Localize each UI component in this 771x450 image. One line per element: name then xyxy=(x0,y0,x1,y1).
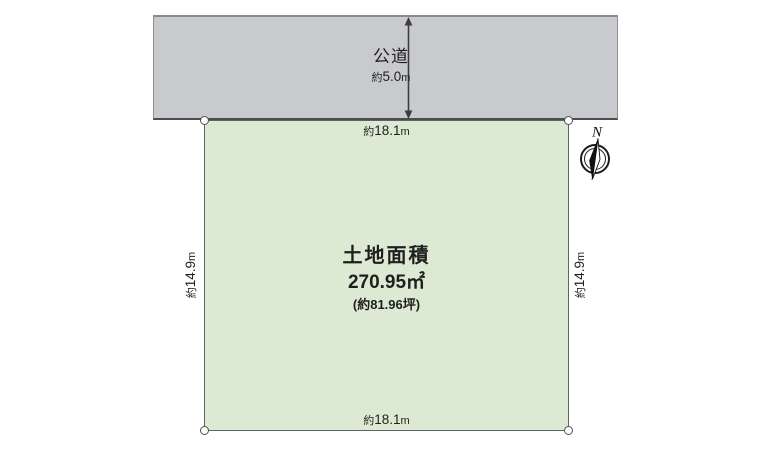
dim-right-unit: m xyxy=(575,252,587,261)
land-area-title: 土地面積 xyxy=(204,243,569,269)
corner-marker-top-right xyxy=(564,116,573,125)
road-width-prefix: 約 xyxy=(372,72,383,84)
road-width-label: 約5.0m xyxy=(341,69,441,86)
dim-right-prefix: 約 xyxy=(575,287,587,298)
land-area-tsubo: (約81.96坪) xyxy=(204,297,569,314)
compass-icon xyxy=(575,135,615,185)
road-label-group: 公道 約5.0m xyxy=(341,46,441,86)
dim-top-value: 18.1 xyxy=(374,123,400,138)
road-name-label: 公道 xyxy=(341,46,441,67)
dim-bottom-prefix: 約 xyxy=(363,415,374,427)
dimension-label-top: 約18.1m xyxy=(204,122,569,140)
dim-left-prefix: 約 xyxy=(186,287,198,298)
dim-bottom-value: 18.1 xyxy=(374,412,400,427)
dim-left-value: 14.9 xyxy=(183,261,198,287)
land-area-square-meters: 270.95㎡ xyxy=(204,271,569,296)
land-plot-diagram: 公道 約5.0m 約18.1m 約18.1m 約14.9m 約14.9m 土地面… xyxy=(0,0,771,450)
north-label: N xyxy=(592,125,602,142)
dim-bottom-unit: m xyxy=(401,415,410,427)
dim-right-value: 14.9 xyxy=(572,261,587,287)
dim-top-unit: m xyxy=(401,126,410,138)
corner-marker-bottom-left xyxy=(200,426,209,435)
corner-marker-top-left xyxy=(200,116,209,125)
corner-marker-bottom-right xyxy=(564,426,573,435)
road-width-value: 5.0 xyxy=(383,69,402,84)
dim-left-unit: m xyxy=(186,252,198,261)
dim-top-prefix: 約 xyxy=(363,126,374,138)
road-width-unit: m xyxy=(401,72,410,84)
dimension-label-left: 約14.9m xyxy=(182,252,200,298)
land-area-info: 土地面積 270.95㎡ (約81.96坪) xyxy=(204,243,569,314)
dimension-label-right: 約14.9m xyxy=(571,252,589,298)
dimension-label-bottom: 約18.1m xyxy=(204,411,569,429)
